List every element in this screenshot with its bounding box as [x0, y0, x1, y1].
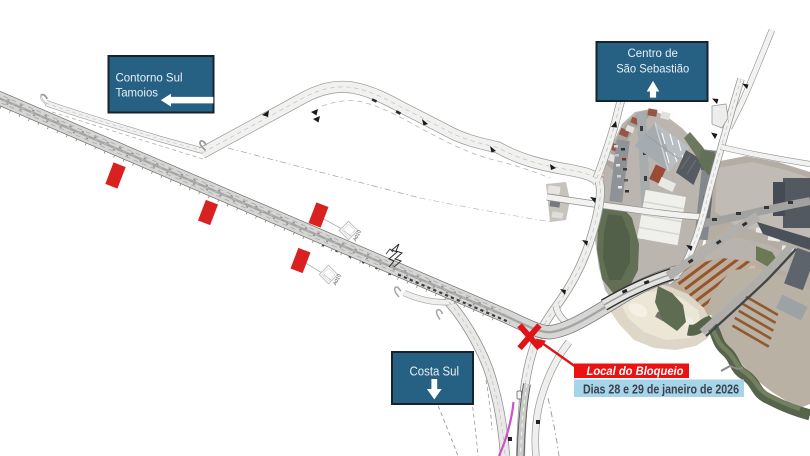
- svg-text:Contorno Sul: Contorno Sul: [116, 71, 183, 85]
- svg-text:Tamoios: Tamoios: [116, 86, 159, 100]
- svg-text:São Sebastião: São Sebastião: [616, 62, 689, 76]
- svg-text:Costa Sul: Costa Sul: [410, 364, 460, 378]
- svg-text:Local do Bloqueio: Local do Bloqueio: [587, 364, 684, 378]
- svg-text:Dias 28 e 29 de janeiro de 202: Dias 28 e 29 de janeiro de 2026: [583, 382, 739, 397]
- svg-text:Centro de: Centro de: [627, 46, 678, 60]
